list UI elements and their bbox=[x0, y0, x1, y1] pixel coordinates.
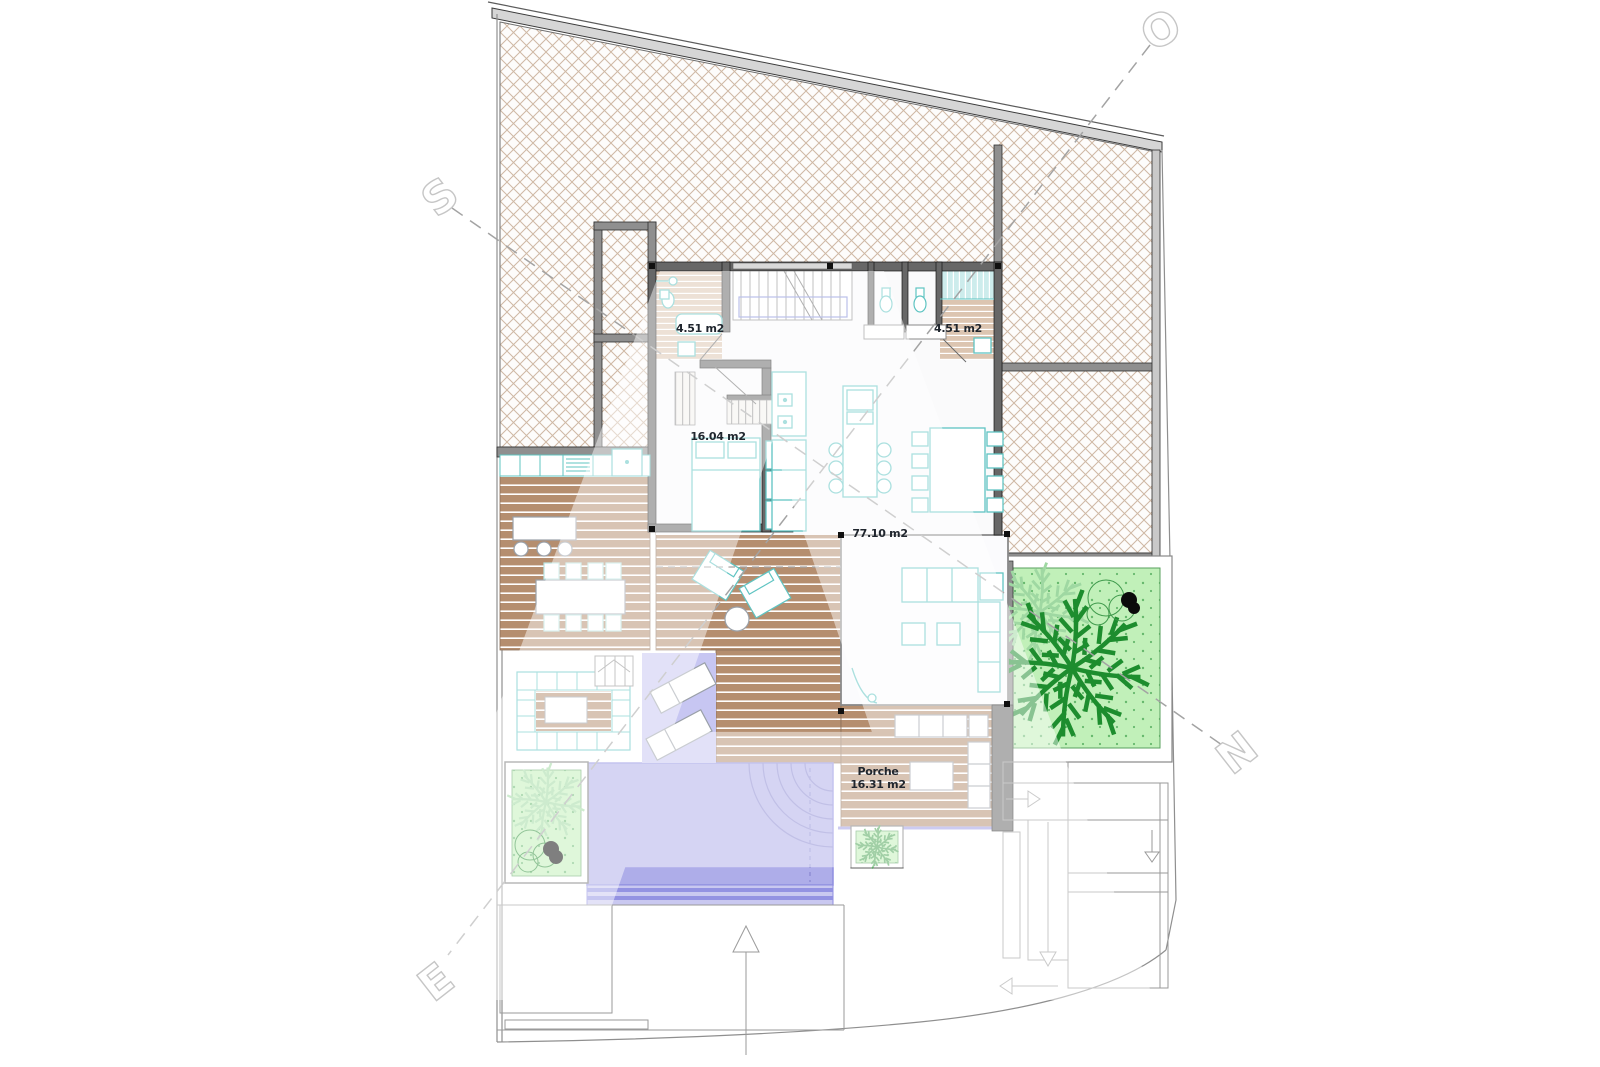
label-bathroom-right: 4.51 m2 bbox=[934, 322, 982, 335]
label-bedroom: 16.04 m2 bbox=[690, 430, 745, 443]
watermark-letter-a: A bbox=[385, 72, 1166, 1067]
floor-plan-page: A S O N E 4.51 m2 4.51 m2 16.04 m2 77.10… bbox=[0, 0, 1600, 1067]
label-porch-name: Porche bbox=[857, 765, 898, 778]
label-bathroom-left: 4.51 m2 bbox=[676, 322, 724, 335]
label-porch-area: 16.31 m2 bbox=[850, 778, 905, 791]
compass-west: O bbox=[1132, 0, 1190, 62]
label-living: 77.10 m2 bbox=[852, 527, 907, 540]
compass-north: N bbox=[1207, 722, 1267, 785]
floor-plan-drawing: A S O N E 4.51 m2 4.51 m2 16.04 m2 77.10… bbox=[0, 0, 1600, 1067]
